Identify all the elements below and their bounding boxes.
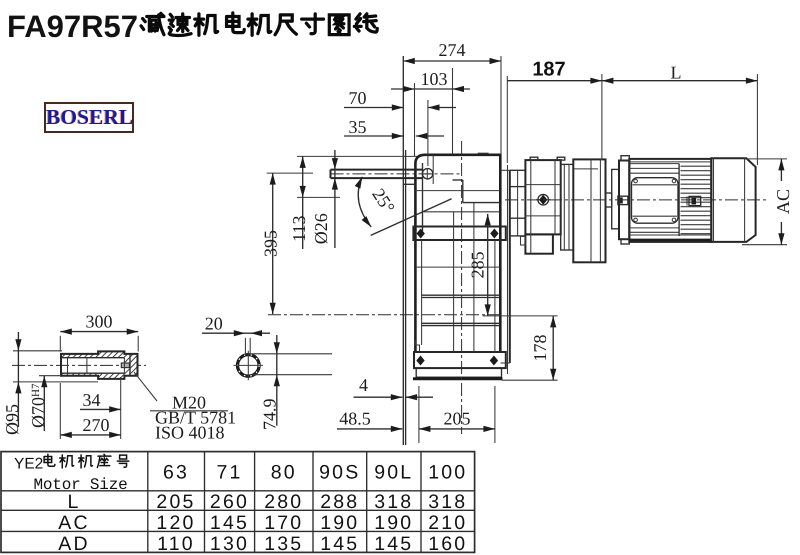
svg-text:103: 103: [421, 69, 448, 89]
svg-text:205: 205: [444, 409, 471, 429]
svg-text:288: 288: [320, 491, 359, 513]
svg-text:70: 70: [349, 88, 367, 108]
svg-text:145: 145: [320, 533, 359, 555]
svg-text:FA97R57: FA97R57: [7, 9, 138, 44]
svg-text:178: 178: [530, 335, 550, 362]
svg-text:145: 145: [374, 533, 413, 555]
svg-text:48.5: 48.5: [339, 409, 371, 429]
svg-text:YE2: YE2: [14, 456, 43, 473]
svg-text:135: 135: [264, 533, 303, 555]
svg-text:35: 35: [349, 117, 367, 137]
svg-text:170: 170: [264, 512, 303, 534]
svg-text:130: 130: [210, 533, 249, 555]
svg-text:160: 160: [428, 533, 467, 555]
svg-text:20: 20: [205, 314, 223, 334]
svg-text:90S: 90S: [319, 462, 360, 484]
svg-text:318: 318: [374, 491, 413, 513]
svg-text:145: 145: [210, 512, 249, 534]
svg-text:AC: AC: [58, 512, 90, 534]
svg-text:L: L: [67, 491, 80, 513]
svg-text:80: 80: [271, 462, 297, 484]
svg-text:120: 120: [156, 512, 195, 534]
svg-text:280: 280: [264, 491, 303, 513]
svg-text:395: 395: [261, 230, 281, 257]
svg-text:260: 260: [210, 491, 249, 513]
svg-text:63: 63: [163, 462, 189, 484]
svg-text:34: 34: [83, 390, 101, 410]
svg-text:113: 113: [289, 216, 309, 242]
svg-text:90L: 90L: [374, 462, 413, 484]
svg-text:Ø26: Ø26: [311, 213, 331, 244]
svg-text:300: 300: [86, 312, 113, 332]
svg-text:4: 4: [359, 375, 368, 395]
svg-text:71: 71: [216, 462, 242, 484]
svg-text:318: 318: [428, 491, 467, 513]
svg-text:274: 274: [439, 40, 466, 60]
svg-text:205: 205: [156, 491, 195, 513]
svg-text:AC: AC: [773, 189, 793, 214]
svg-text:100: 100: [428, 462, 467, 484]
svg-text:190: 190: [374, 512, 413, 534]
svg-text:AD: AD: [58, 533, 90, 555]
svg-text:210: 210: [428, 512, 467, 534]
svg-text:270: 270: [83, 415, 110, 435]
svg-text:190: 190: [320, 512, 359, 534]
svg-text:L: L: [671, 63, 682, 83]
svg-text:187: 187: [532, 59, 565, 81]
svg-text:110: 110: [157, 533, 195, 555]
svg-text:285: 285: [468, 251, 488, 278]
svg-text:ISO 4018: ISO 4018: [155, 423, 225, 443]
svg-text:Ø95: Ø95: [2, 404, 22, 435]
svg-text:74.9: 74.9: [260, 399, 280, 431]
